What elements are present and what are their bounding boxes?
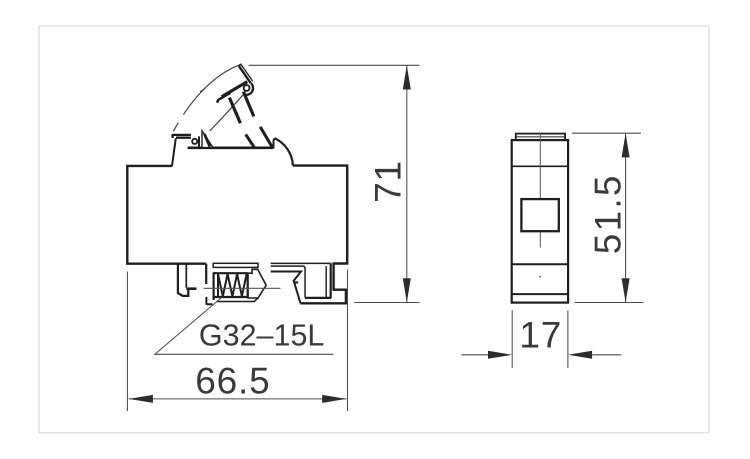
- svg-text:66.5: 66.5: [195, 361, 270, 402]
- svg-text:17: 17: [519, 314, 562, 355]
- svg-text:71: 71: [368, 160, 409, 203]
- svg-text:G32–15L: G32–15L: [199, 318, 325, 352]
- svg-text:51.5: 51.5: [588, 173, 629, 254]
